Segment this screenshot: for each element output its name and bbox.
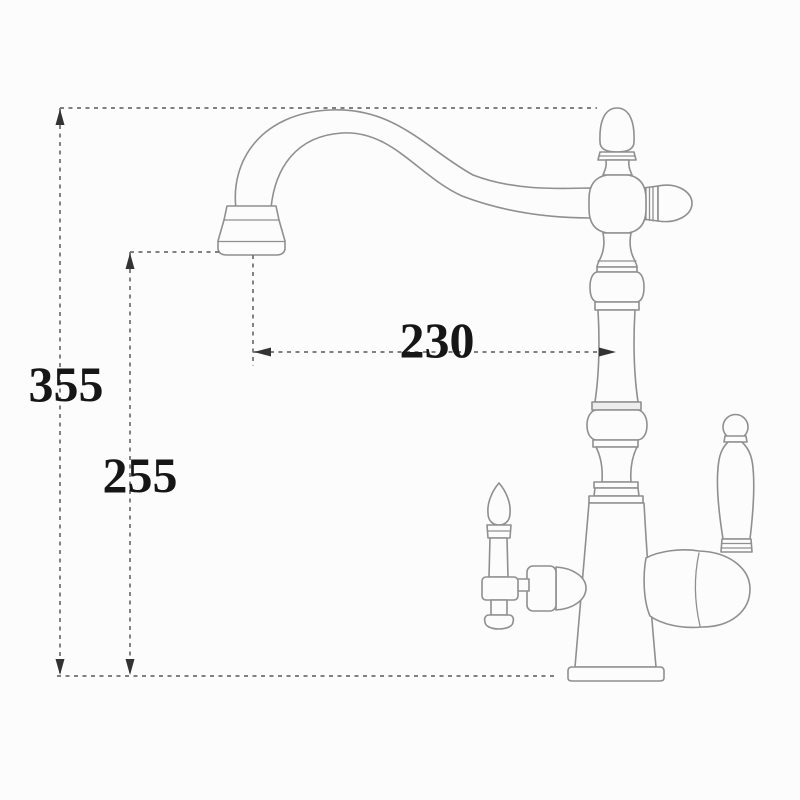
arrow-up-icon [126,253,135,269]
dimension-label-total-height: 355 [29,356,104,412]
dimension-label-spout-height: 255 [103,447,178,503]
side-knob [643,185,692,221]
spout [235,110,591,218]
arrow-down-icon [56,659,65,675]
filter-handle [482,483,586,629]
spout-nozzle [218,206,285,255]
technical-drawing-canvas: 355 255 230 [0,0,800,800]
dimension-spout-reach: 230 [253,255,616,368]
spout-hub [589,175,646,233]
lever-handle [644,415,754,628]
arrow-up-icon [56,109,65,125]
faucet-drawing [218,108,754,681]
faucet-dimension-diagram: 355 255 230 [0,0,800,800]
top-finial [598,108,636,175]
arrow-down-icon [126,659,135,675]
column [587,233,647,503]
dimension-spout-height: 255 [103,252,223,676]
arrow-left-icon [254,348,271,357]
base-flange [568,667,664,681]
dimension-label-spout-reach: 230 [400,312,475,368]
